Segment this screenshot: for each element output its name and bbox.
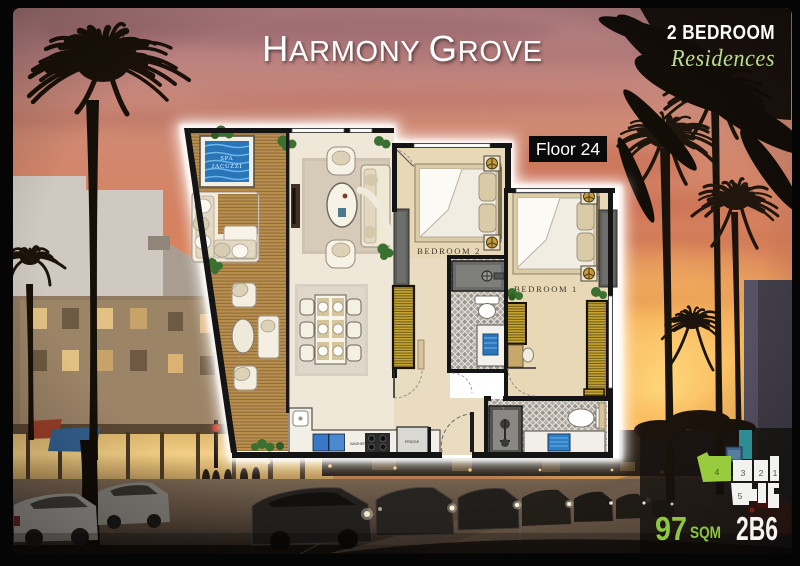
svg-text:Residences: Residences — [670, 46, 775, 72]
svg-text:4: 4 — [715, 467, 720, 477]
svg-text:Floor 24: Floor 24 — [536, 139, 600, 159]
svg-text:SQM: SQM — [690, 523, 721, 542]
svg-text:BEDROOM 2: BEDROOM 2 — [417, 246, 481, 256]
svg-text:2 BEDROOM: 2 BEDROOM — [667, 22, 775, 44]
svg-text:FRIDGE: FRIDGE — [405, 440, 420, 444]
svg-text:WASHER: WASHER — [350, 442, 366, 446]
svg-text:2: 2 — [759, 468, 764, 478]
svg-text:JACUZZI: JACUZZI — [212, 163, 243, 170]
svg-text:SPA: SPA — [220, 155, 233, 162]
svg-text:3: 3 — [741, 468, 746, 478]
svg-text:BEDROOM 1: BEDROOM 1 — [514, 284, 578, 294]
svg-text:1: 1 — [773, 468, 778, 478]
svg-text:5: 5 — [738, 491, 743, 501]
svg-text:2B6: 2B6 — [736, 510, 778, 547]
svg-text:97: 97 — [655, 510, 687, 547]
